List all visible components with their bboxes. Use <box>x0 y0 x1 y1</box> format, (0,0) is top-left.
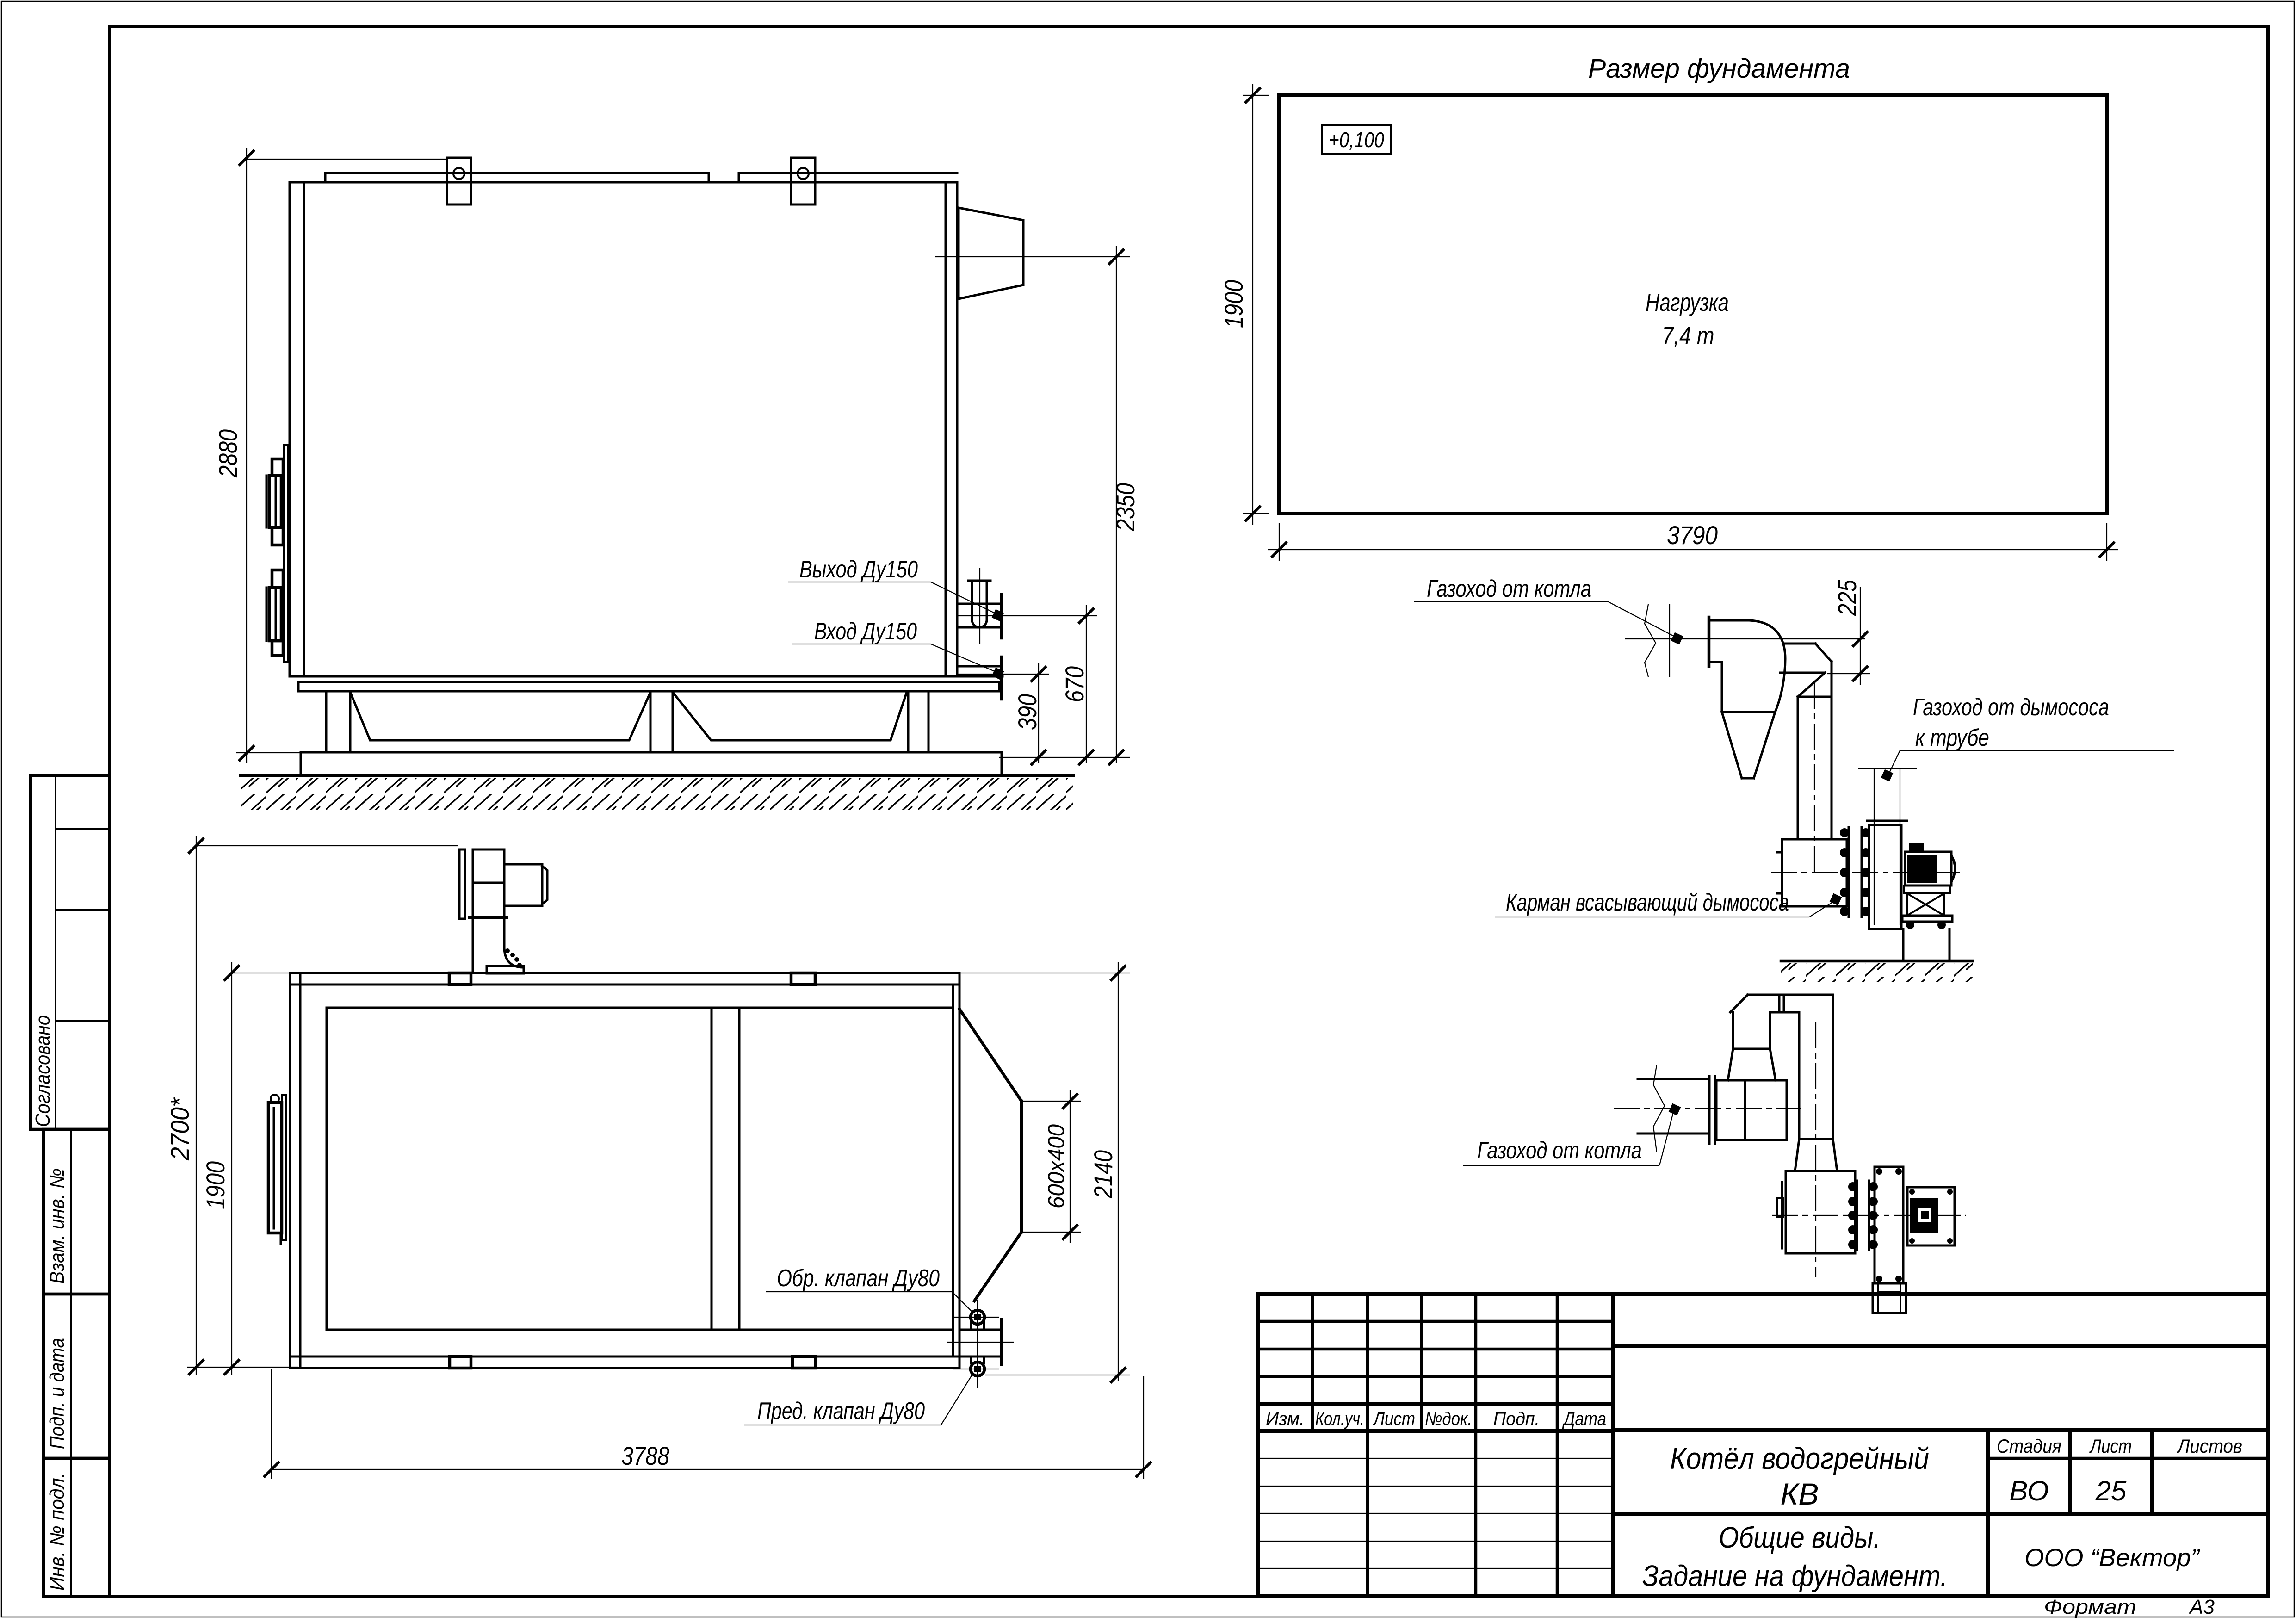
svg-text:Котёл водогрейный: Котёл водогрейный <box>1670 1441 1929 1475</box>
svg-text:Лист: Лист <box>1372 1409 1415 1429</box>
svg-text:7,4 т: 7,4 т <box>1662 322 1714 350</box>
svg-text:А3: А3 <box>2188 1596 2215 1618</box>
svg-text:225: 225 <box>1832 579 1862 616</box>
svg-text:Газоход от дымососа: Газоход от дымососа <box>1913 694 2109 721</box>
svg-text:Размер фундамента: Размер фундамента <box>1588 54 1850 84</box>
svg-text:670: 670 <box>1060 666 1089 702</box>
svg-text:Пред. клапан Ду80: Пред. клапан Ду80 <box>757 1398 925 1425</box>
svg-text:3788: 3788 <box>621 1441 669 1470</box>
svg-text:Подп. и дата: Подп. и дата <box>46 1338 68 1449</box>
svg-text:к трубе: к трубе <box>1915 725 1989 751</box>
svg-text:Газоход от котла: Газоход от котла <box>1477 1137 1642 1164</box>
svg-text:1900: 1900 <box>201 1161 230 1209</box>
svg-text:Согласовано: Согласовано <box>31 1015 54 1127</box>
svg-text:Нагрузка: Нагрузка <box>1646 289 1729 316</box>
svg-text:Карман всасывающий дымососа: Карман всасывающий дымососа <box>1506 889 1789 916</box>
svg-text:2350: 2350 <box>1111 483 1140 532</box>
svg-text:Вход Ду150: Вход Ду150 <box>814 618 917 645</box>
svg-text:Лист: Лист <box>2089 1435 2132 1457</box>
svg-text:390: 390 <box>1013 694 1042 730</box>
svg-text:2140: 2140 <box>1089 1150 1118 1199</box>
svg-text:2700*: 2700* <box>165 1097 194 1161</box>
svg-text:3790: 3790 <box>1667 520 1718 550</box>
svg-text:25: 25 <box>2095 1475 2127 1506</box>
svg-text:ВО: ВО <box>2009 1475 2048 1506</box>
svg-text:Выход Ду150: Выход Ду150 <box>799 556 918 583</box>
svg-text:Инв. № подл.: Инв. № подл. <box>46 1473 68 1591</box>
svg-text:Газоход от котла: Газоход от котла <box>1427 576 1591 602</box>
svg-text:600х400: 600х400 <box>1043 1124 1069 1208</box>
svg-text:Задание на фундамент.: Задание на фундамент. <box>1642 1559 1948 1592</box>
svg-text:ООО “Вектор”: ООО “Вектор” <box>2024 1544 2200 1572</box>
svg-text:Стадия: Стадия <box>1997 1435 2061 1457</box>
svg-text:Изм.: Изм. <box>1266 1409 1305 1429</box>
svg-text:Листов: Листов <box>2176 1435 2242 1457</box>
svg-text:1900: 1900 <box>1219 280 1248 328</box>
svg-text:Кол.уч.: Кол.уч. <box>1315 1409 1364 1429</box>
svg-text:+0,100: +0,100 <box>1329 128 1384 152</box>
svg-text:Дата: Дата <box>1562 1409 1606 1429</box>
svg-text:Формат: Формат <box>2044 1596 2136 1618</box>
svg-text:Взам. инв. №: Взам. инв. № <box>46 1168 68 1284</box>
svg-text:КВ: КВ <box>1781 1477 1819 1511</box>
svg-text:№док.: №док. <box>1425 1409 1472 1429</box>
svg-text:Подп.: Подп. <box>1493 1409 1540 1429</box>
svg-text:Обр. клапан Ду80: Обр. клапан Ду80 <box>777 1265 940 1292</box>
svg-text:2880: 2880 <box>213 429 242 478</box>
svg-text:Общие виды.: Общие виды. <box>1719 1521 1881 1554</box>
